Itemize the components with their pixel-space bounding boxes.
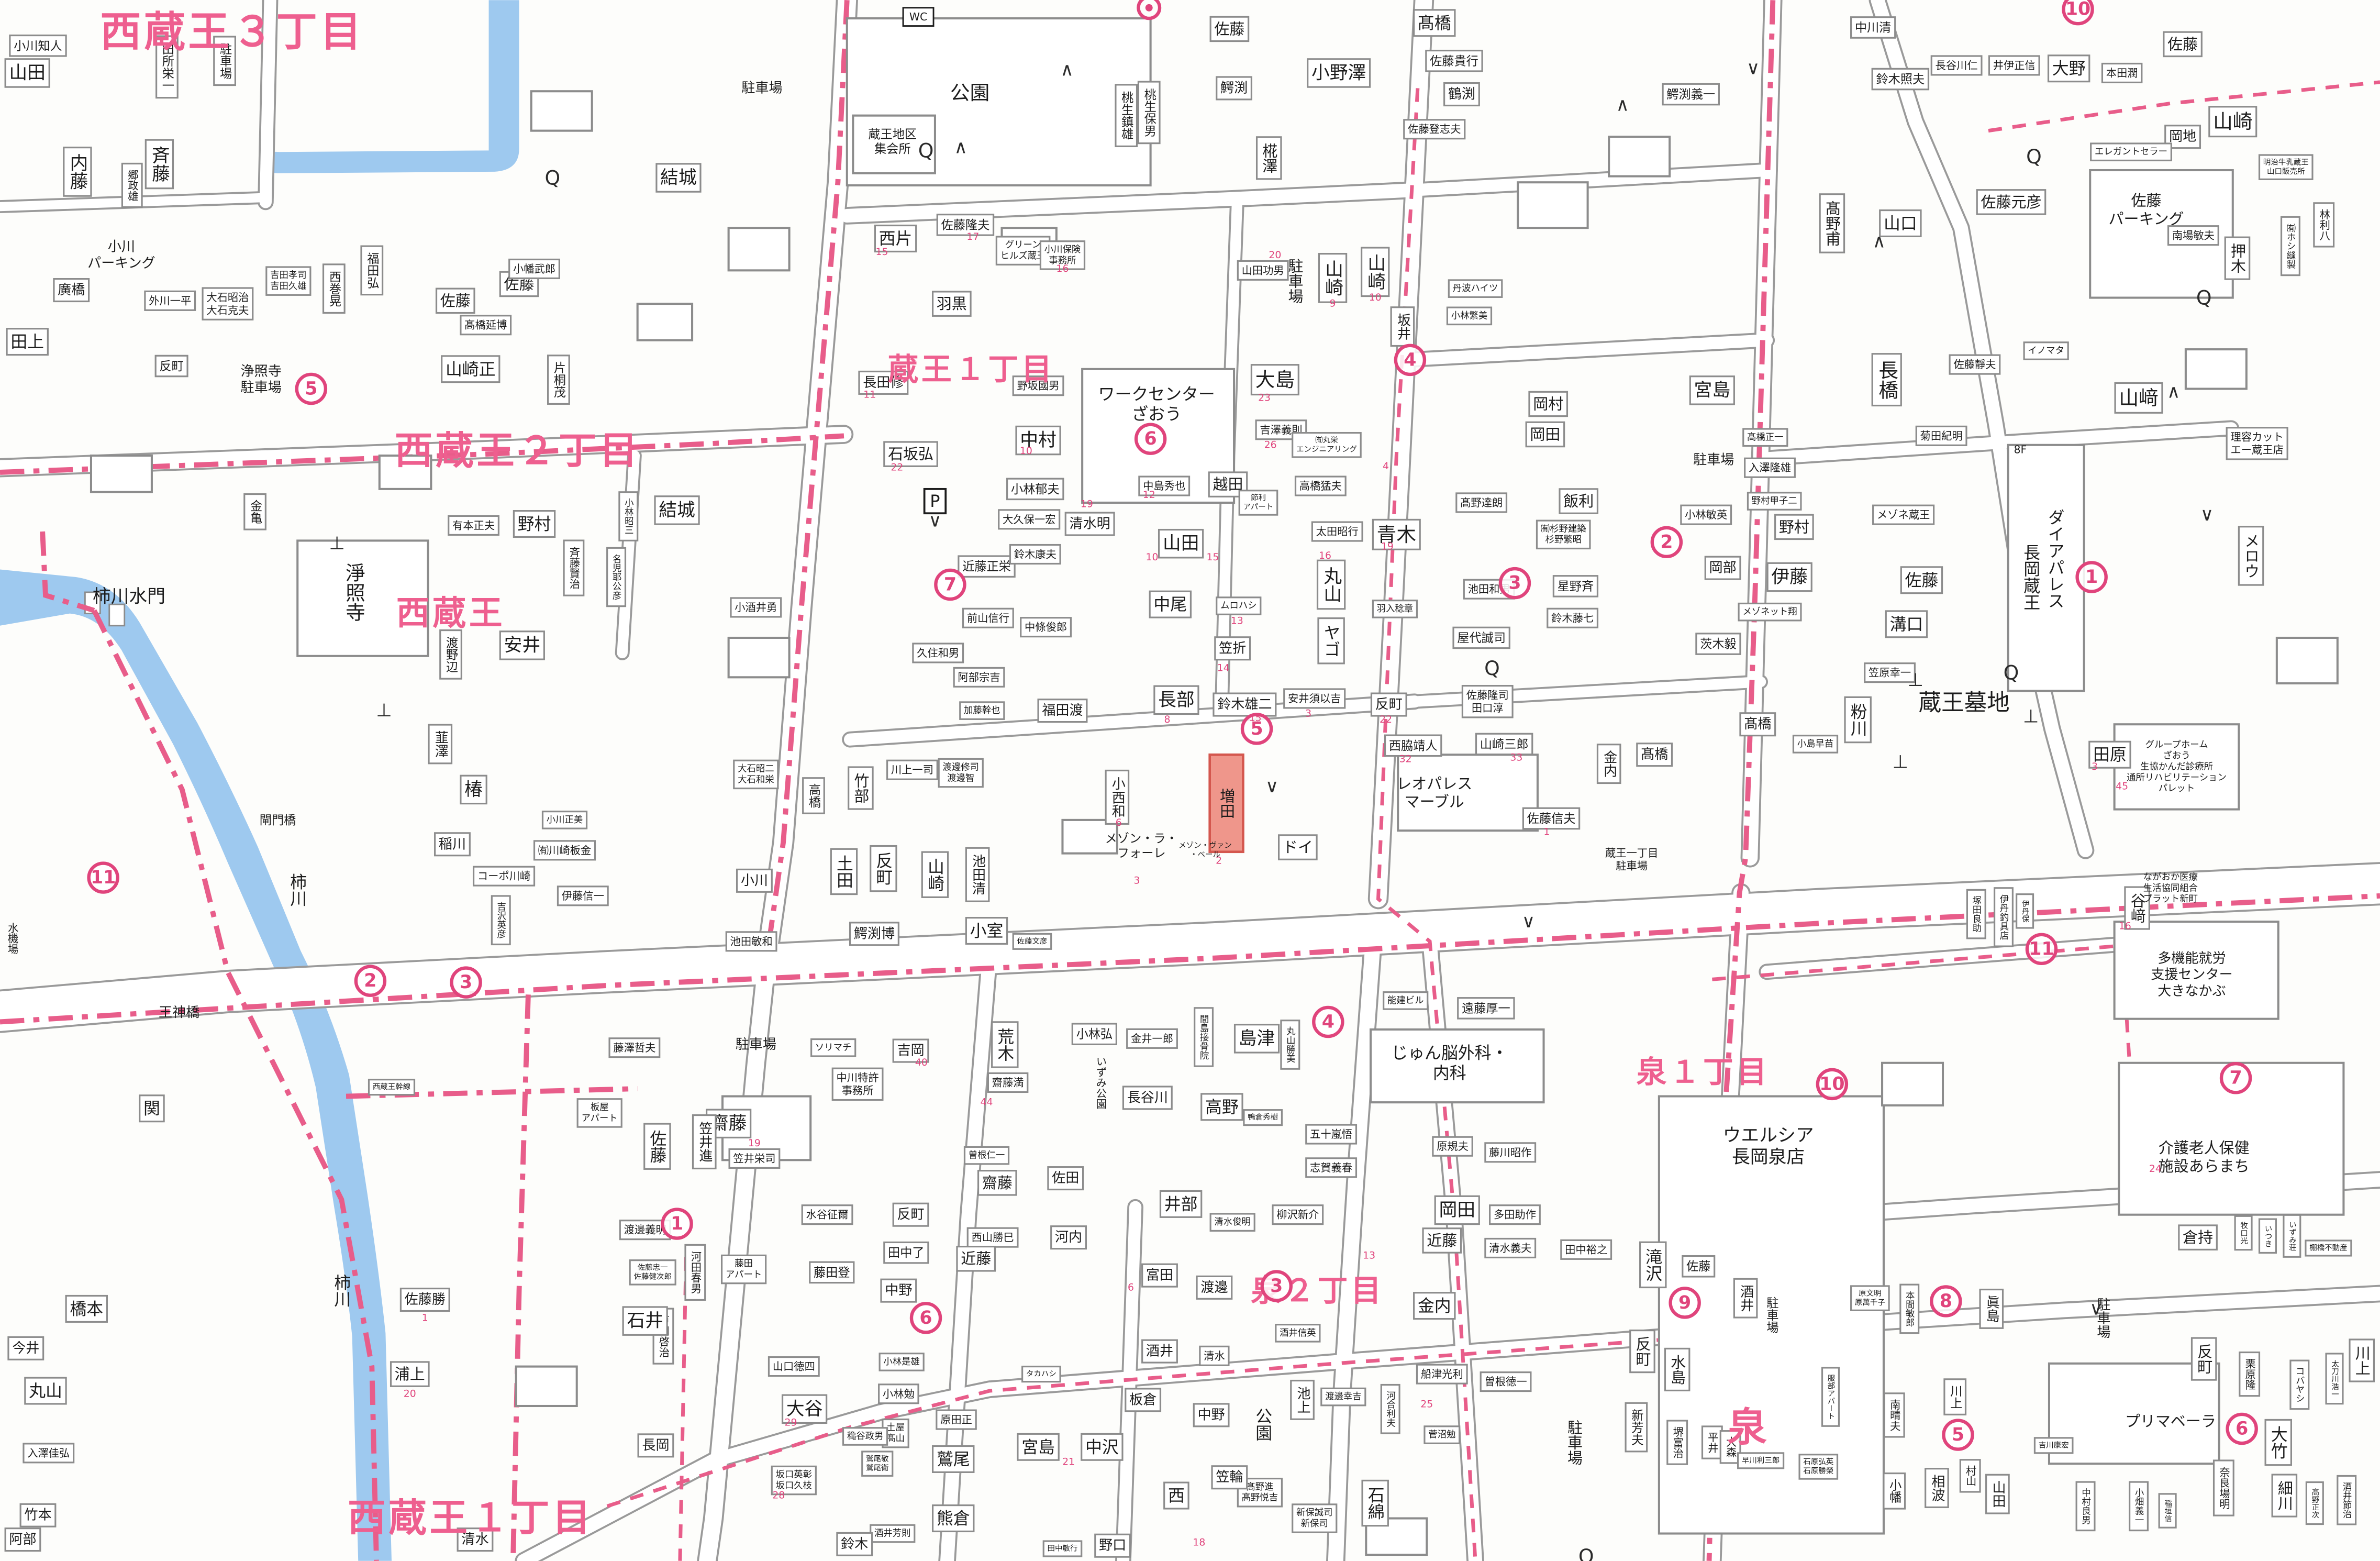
map-label: 柿川 <box>287 873 307 906</box>
map-label: 板倉 <box>1129 1392 1156 1408</box>
lot-number: 20 <box>1269 250 1281 261</box>
entrance-mark-symbol: ∨ <box>1265 776 1278 797</box>
entrance-mark-symbol: ∧ <box>1616 94 1629 115</box>
map-label: 外川一平 <box>149 294 191 307</box>
map-label: 渡邊修司渡邊智 <box>942 762 979 784</box>
map-label: 吉田孝司吉田久雄 <box>270 270 307 292</box>
map-label: 相波 <box>1929 1474 1945 1501</box>
map-label: 原規夫 <box>1437 1140 1469 1153</box>
map-label: 清水義夫 <box>1489 1242 1531 1254</box>
map-label: 齋藤 <box>982 1174 1013 1192</box>
map-label: 中尾 <box>1153 594 1187 614</box>
lot-number: 6 <box>1128 1282 1134 1293</box>
map-label: 野口 <box>1099 1538 1126 1554</box>
map-label: 鰐渕博 <box>854 926 895 942</box>
building-footprint <box>1882 1063 1943 1105</box>
map-label: 遠藤厚一 <box>1462 1001 1510 1015</box>
map-label: 水島 <box>1669 1354 1686 1385</box>
lot-number: 15 <box>1249 713 1262 724</box>
utility-pole-symbol: Q <box>544 167 560 190</box>
map-label: 井部 <box>1164 1194 1198 1214</box>
map-label: 村山 <box>1964 1465 1976 1487</box>
map-label: 原田正 <box>940 1413 972 1426</box>
map-label: 柿川水門 <box>93 586 165 607</box>
map-label: 平井 <box>1706 1432 1718 1453</box>
circled-number: 10 <box>2065 0 2090 20</box>
map-label: 佐藤 <box>2167 35 2198 53</box>
map-label: 公園 <box>950 81 989 104</box>
circled-number: 5 <box>305 378 317 399</box>
map-label: 田中了 <box>888 1246 925 1260</box>
map-label: 鈴木康夫 <box>1014 548 1056 561</box>
map-label: 齋藤満 <box>992 1076 1024 1089</box>
map-label: 島津 <box>1239 1028 1275 1049</box>
map-label: 栗原隆 <box>2243 1358 2256 1390</box>
map-label: 土田 <box>834 855 854 889</box>
map-label: 倉持 <box>2183 1228 2213 1246</box>
map-label: 小西和 <box>1109 777 1126 817</box>
map-label: 山崎 <box>1365 253 1386 290</box>
map-label: 酒井 <box>1738 1285 1754 1312</box>
map-label: ながおか医療生活協同組合プラット新町 <box>2143 872 2198 904</box>
map-label: 小川知人 <box>14 39 62 53</box>
lot-number: 26 <box>1264 439 1277 450</box>
residential-map-canvas: 増田小川知人山田田所栄一駐車場内藤斉藤郷政雄廣橋小川パーキング田上外川一平大石昭… <box>0 0 2380 1561</box>
circled-number: 4 <box>1404 349 1416 370</box>
map-label: 長谷川 <box>1127 1090 1168 1105</box>
entrance-mark-symbol: ∧ <box>1060 60 1073 81</box>
map-label: 小畑義一 <box>2133 1488 2144 1525</box>
map-label: 反町 <box>873 852 893 885</box>
map-label: 桃生保男 <box>1142 88 1156 137</box>
map-label: 髙野正次 <box>2310 1488 2319 1518</box>
map-label: 多田助作 <box>1494 1209 1536 1221</box>
building-footprint <box>2277 638 2338 683</box>
map-label: 池上 <box>1295 1386 1310 1413</box>
map-label: 王神橋 <box>159 1005 199 1021</box>
map-label: 韮澤 <box>432 730 449 758</box>
map-label: 大久保一宏 <box>1003 513 1055 526</box>
lot-number: 15 <box>875 247 888 258</box>
map-label: 飯利 <box>1563 492 1594 510</box>
map-label: 穐谷政男 <box>847 1431 884 1442</box>
map-label: 結城 <box>660 168 697 189</box>
entrance-mark-symbol: ∧ <box>1873 231 1886 252</box>
map-label: 髙橋正一 <box>1747 432 1783 442</box>
lot-number: 2 <box>1216 856 1222 867</box>
cemetery-symbol: ⊥ <box>2023 706 2039 727</box>
map-label: 宮島 <box>1021 1437 1055 1457</box>
map-label: ヤゴ <box>1321 624 1341 658</box>
map-label: 福田弘 <box>365 252 380 289</box>
lot-number: 25 <box>1420 1399 1433 1410</box>
map-label: 反町 <box>1375 697 1403 713</box>
map-label: 熊倉 <box>937 1509 970 1529</box>
lot-number: 40 <box>915 1057 928 1068</box>
map-label: 竹本 <box>24 1508 51 1523</box>
map-label: 山崎正 <box>446 359 496 379</box>
map-label: タカハシ <box>1026 1369 1056 1378</box>
map-label: 近藤 <box>1427 1232 1457 1249</box>
map-label: レオパレスマーブル <box>1396 774 1472 811</box>
map-label: 佐藤隆夫 <box>941 218 990 232</box>
map-label: 伊丹釣具店 <box>1998 894 2009 940</box>
lot-number: 9 <box>1330 298 1336 309</box>
lot-number: 28 <box>772 1490 785 1501</box>
map-label: メゾネット翔 <box>1742 607 1797 617</box>
map-label: コーポ川崎 <box>477 870 530 882</box>
map-label: 小川正美 <box>547 815 583 825</box>
building-footprint <box>516 1367 577 1406</box>
utility-pole-symbol: Q <box>1578 1545 1594 1561</box>
map-label: 長部 <box>1158 690 1195 711</box>
building-footprint <box>1518 182 1587 228</box>
lot-number: 20 <box>404 1388 416 1399</box>
map-label: 笠井進 <box>696 1121 713 1162</box>
circled-number: 10 <box>1819 1073 1844 1094</box>
map-label: 佐藤貴行 <box>1430 54 1478 68</box>
circled-number: 5 <box>1952 1424 1964 1445</box>
map-label: 西巻晃 <box>327 270 341 307</box>
map-label: 山口徳四 <box>773 1360 815 1373</box>
lot-number: 1 <box>422 1312 428 1323</box>
district-label: 西蔵王３丁目 <box>100 8 364 56</box>
building-footprint <box>1609 137 1670 176</box>
map-label: 笠折 <box>1219 640 1246 656</box>
entrance-mark-symbol: ∨ <box>1747 58 1760 79</box>
map-label: 南場敏夫 <box>2172 229 2215 242</box>
map-label: 押木 <box>2228 243 2246 273</box>
lot-number: 8 <box>1164 714 1171 725</box>
circled-number: 7 <box>2229 1068 2242 1089</box>
map-label: 笠原幸一 <box>1869 667 1911 679</box>
highlighted-building-label: 増田 <box>1218 788 1236 818</box>
map-label: 曽根仁一 <box>969 1150 1005 1161</box>
map-label: 岡部 <box>1709 560 1737 576</box>
survey-point-symbol <box>1145 4 1153 12</box>
map-label: 金亀 <box>248 500 263 524</box>
map-label: 丹波ハイツ <box>1453 283 1498 294</box>
map-label: 大島 <box>1255 368 1295 391</box>
lot-number: 13 <box>1231 616 1243 627</box>
map-label: 早川利三郎 <box>1742 1456 1780 1465</box>
map-label: 反町 <box>159 359 183 373</box>
map-label: 西片 <box>879 228 913 248</box>
map-label: 林利八 <box>2318 209 2330 241</box>
map-label: 石原弘英石原勝榮 <box>1803 1457 1833 1475</box>
map-label: 入澤隆雄 <box>1749 461 1791 474</box>
map-label: 山田功男 <box>1242 264 1284 276</box>
map-label: 野村甲子二 <box>1752 496 1797 506</box>
map-label: 柿川 <box>331 1274 351 1308</box>
map-label: 中野 <box>1198 1407 1225 1423</box>
map-label: 西 <box>1168 1486 1185 1505</box>
lot-number: 3 <box>1134 875 1140 886</box>
district-label: 西蔵王 <box>396 594 506 633</box>
map-label: 金井一郎 <box>1131 1032 1173 1045</box>
map-label: 蔵王地区集会所 <box>868 127 917 156</box>
lot-number: 1 <box>1543 827 1550 838</box>
map-label: 溝口 <box>1890 614 1923 634</box>
map-label: いつき <box>2263 1225 2272 1248</box>
entrance-mark-symbol: ∨ <box>928 511 941 532</box>
map-label: 近藤正栄 <box>962 559 1011 573</box>
map-label: 菅沼勉 <box>1428 1430 1455 1440</box>
map-label: 廣橋 <box>58 282 85 298</box>
circled-number: 3 <box>1270 1276 1283 1297</box>
map-label: 塚田良助 <box>1971 896 1982 933</box>
map-label: 岡田 <box>1439 1200 1475 1221</box>
building-footprint <box>91 456 152 492</box>
map-label: 本田潤 <box>2106 67 2138 79</box>
map-label: 髙橋 <box>1418 13 1451 33</box>
map-label: 小林昭三 <box>623 498 633 535</box>
circled-number: 8 <box>1940 1291 1952 1312</box>
circled-number: 11 <box>2029 938 2054 959</box>
map-label: 西山勝巳 <box>972 1231 1014 1244</box>
lot-number: 45 <box>2116 781 2128 792</box>
map-label: コバヤシ <box>2294 1367 2305 1403</box>
map-label: 岡地 <box>2169 129 2196 145</box>
map-label: 高橋 <box>806 783 821 808</box>
map-label: 駐車場 <box>1764 1297 1779 1333</box>
map-label: 閘門橋 <box>260 813 296 827</box>
entrance-mark-symbol: ∧ <box>954 137 967 158</box>
lot-number: 21 <box>1062 1457 1075 1468</box>
map-label: 鈴木藤七 <box>1551 612 1594 624</box>
map-label: 川上 <box>2353 1345 2371 1376</box>
map-label: 橋本 <box>70 1299 103 1319</box>
map-label: 今井 <box>12 1341 39 1356</box>
map-label: 野村 <box>518 514 551 534</box>
map-label: 前山信行 <box>967 612 1009 624</box>
map-label: 太田昭行 <box>1316 525 1359 538</box>
lot-number: 32 <box>1399 754 1412 765</box>
map-label: 丸山 <box>1321 567 1342 603</box>
map-label: 髙橋延博 <box>464 319 507 331</box>
circled-number: 11 <box>91 867 116 888</box>
map-label: 多機能就労支援センター大きなかぶ <box>2151 950 2232 999</box>
map-label: 安井須以吉 <box>1288 692 1341 705</box>
lot-number: 19 <box>1081 499 1093 510</box>
map-label: 渡邊義明 <box>624 1224 666 1236</box>
map-label: 小林繁美 <box>1451 311 1488 321</box>
map-label: 清水明 <box>1070 516 1110 532</box>
lot-number: 16 <box>2119 921 2131 932</box>
map-label: 髙橋 <box>1641 747 1668 762</box>
map-label: 石坂弘 <box>888 445 933 463</box>
map-label: 介護老人保健施設あらまち <box>2159 1139 2250 1175</box>
map-label: 髙橋 <box>1744 716 1771 732</box>
map-label: 佐藤 <box>1214 20 1244 38</box>
circled-number: 7 <box>944 574 957 595</box>
circled-number: 9 <box>1678 1292 1691 1313</box>
map-label: 清水 <box>1204 1349 1225 1362</box>
utility-pole-symbol: Q <box>2004 661 2019 684</box>
lot-number: 18 <box>1193 1537 1205 1548</box>
lot-number: 15 <box>1207 552 1219 563</box>
map-label: 久住和男 <box>917 647 959 659</box>
circled-number: 2 <box>364 970 376 991</box>
map-label: 阿部 <box>9 1532 36 1547</box>
circled-number: 3 <box>460 972 472 993</box>
map-label: 羽入稔章 <box>1377 604 1414 614</box>
map-label: 吉川康宏 <box>2039 1441 2069 1449</box>
map-label: 丸山 <box>29 1381 62 1401</box>
map-label: プリマベーラ <box>2125 1412 2216 1430</box>
map-label: 西蔵王幹線 <box>373 1082 410 1091</box>
map-label: 奈良場明 <box>2217 1467 2230 1509</box>
circled-number: 6 <box>2236 1418 2248 1439</box>
map-label: 片桐茂 <box>551 361 566 398</box>
lot-number: 24 <box>2149 1164 2162 1175</box>
map-label: 新芳夫 <box>1629 1409 1644 1446</box>
map-label: 小林郁夫 <box>1011 482 1060 496</box>
map-label: 酒井信英 <box>1280 1328 1316 1338</box>
building-footprint <box>729 228 789 270</box>
lot-number: 3 <box>2092 761 2098 772</box>
map-label: 近藤 <box>961 1250 991 1268</box>
map-label: 長岡蔵王 <box>2021 544 2041 611</box>
map-label: 山崎 <box>925 858 945 891</box>
map-label: 堺富治 <box>1671 1426 1684 1458</box>
map-label: 高橋猛夫 <box>1299 480 1342 492</box>
lot-number: 10 <box>1020 446 1032 457</box>
map-label: 中川清 <box>1855 20 1892 35</box>
map-label: 佐藤 <box>440 292 471 309</box>
map-label: 曽根徳一 <box>1484 1376 1527 1388</box>
map-label: ㈲杉野建築杉野繁昭 <box>1541 524 1586 545</box>
map-label: 河田春男 <box>689 1251 702 1293</box>
map-label: 山田 <box>9 62 46 83</box>
entrance-mark-symbol: ∨ <box>1522 911 1535 932</box>
lot-number: 12 <box>1143 490 1155 501</box>
map-label: 稲垣信 <box>2163 1499 2172 1522</box>
map-label: 山田 <box>1989 1480 2005 1508</box>
map-label: 小酒井勇 <box>735 601 777 614</box>
map-label: 名児耶公彦 <box>611 555 621 600</box>
map-label: 佐田 <box>1052 1170 1079 1186</box>
map-label: 福田渡 <box>1042 703 1083 718</box>
map-label: 長橋 <box>1875 360 1898 400</box>
map-label: 服部アパート <box>1826 1374 1834 1420</box>
map-label: 酒井芳則 <box>874 1529 911 1539</box>
entrance-mark-symbol: ∨ <box>2089 1298 2103 1319</box>
map-label: ㈲ホシ縫製 <box>2285 223 2296 269</box>
map-label: 佐藤靜夫 <box>1953 358 1996 371</box>
cemetery-symbol: ⊥ <box>1908 670 1923 691</box>
cemetery-symbol: ⊥ <box>329 533 344 554</box>
map-label: 棚橋不動産 <box>2309 1243 2347 1252</box>
utility-pole-symbol: Q <box>2196 286 2212 309</box>
lot-number: 44 <box>981 1097 993 1108</box>
map-label: 南晴夫 <box>1888 1399 1900 1431</box>
map-label: 石井 <box>627 1311 663 1332</box>
map-label: 椛澤 <box>1260 142 1278 173</box>
lot-number: 19 <box>748 1138 761 1149</box>
lot-number: 19 <box>1381 541 1394 552</box>
map-label: 斉藤賢治 <box>568 547 580 589</box>
map-label: 坂口英彰坂口久枝 <box>776 1470 813 1491</box>
map-label: 眞島 <box>1984 1295 1999 1322</box>
map-label: 反町 <box>2195 1344 2213 1374</box>
map-label: 鈴木照夫 <box>1876 72 1925 86</box>
map-label: 鰐渕義一 <box>1666 87 1715 102</box>
map-label: 入澤佳弘 <box>27 1447 70 1459</box>
map-label: 山崎 <box>2213 110 2252 133</box>
map-label: 浄照寺駐車場 <box>241 363 282 395</box>
map-label: 竹部 <box>852 773 870 803</box>
lot-number: 16 <box>1056 263 1069 274</box>
map-label: 反町 <box>897 1207 924 1223</box>
map-label: 稲川 <box>439 836 466 852</box>
map-label: 駐車場 <box>741 80 782 96</box>
map-label: 西脇靖人 <box>1389 738 1438 752</box>
map-label: 小野澤 <box>1311 62 1366 83</box>
lot-number: 10 <box>1369 292 1382 303</box>
map-label: 田上 <box>10 332 44 352</box>
map-label: 間島接骨院 <box>1198 1014 1209 1060</box>
map-label: 淨照寺 <box>342 562 365 622</box>
map-label: イノマタ <box>2028 346 2064 356</box>
map-label: 佐藤登志夫 <box>1408 123 1461 136</box>
map-label: 佐藤勝 <box>405 1292 446 1308</box>
map-label: 川上 <box>1948 1385 1963 1409</box>
map-label: 鷲尾 <box>937 1449 970 1469</box>
map-label: 川上一司 <box>891 763 933 776</box>
map-label: ムロハシ <box>1220 601 1257 611</box>
map-label: 中野 <box>885 1283 912 1299</box>
map-label: 新保誠司新保司 <box>1296 1508 1333 1529</box>
lot-number: 14 <box>1217 662 1230 673</box>
map-label: 鰐渕 <box>1220 80 1248 96</box>
entrance-mark-symbol: ∨ <box>2200 504 2214 525</box>
lot-number: 33 <box>1510 752 1522 763</box>
map-label: 酒井節治 <box>2341 1482 2352 1519</box>
map-label: 駐車場 <box>1693 452 1734 468</box>
map-label: 佐藤隆司田口淳 <box>1466 689 1509 714</box>
map-label: 屋代誠司 <box>1457 630 1506 645</box>
map-label: メゾネ蔵王 <box>1877 508 1930 521</box>
map-label: 笠井栄司 <box>733 1152 775 1165</box>
map-label: 田原 <box>2093 745 2127 765</box>
utility-pole-symbol: Q <box>2026 145 2042 168</box>
utility-pole-symbol: Q <box>1484 657 1500 680</box>
building-footprint <box>531 91 592 130</box>
map-label: 小川保険事務所 <box>1044 245 1081 266</box>
map-label: 粉川 <box>1848 703 1868 737</box>
utility-pole-symbol: Q <box>918 139 934 162</box>
lot-number: 10 <box>1146 552 1159 563</box>
map-label: 山崎 <box>1322 260 1343 296</box>
map-label: 池田清 <box>970 854 986 895</box>
map-label: 田中敏行 <box>1047 1544 1077 1553</box>
map-label: 関 <box>143 1099 160 1119</box>
map-label: 伊藤 <box>1771 567 1808 588</box>
map-label: ㈲川崎板金 <box>538 844 591 857</box>
circled-number: 1 <box>2085 567 2098 588</box>
map-label: 蔵王墓地 <box>1919 690 2010 716</box>
map-label: 鶴渕 <box>1448 86 1475 102</box>
map-label: メロウ <box>2242 533 2260 579</box>
map-label: 藤澤哲夫 <box>613 1042 655 1054</box>
map-label: 渡邊 <box>1200 1280 1228 1296</box>
lot-number: 16 <box>1319 550 1331 561</box>
map-label: 菊田紀明 <box>1920 429 1963 442</box>
map-label: 茨木毅 <box>1700 637 1737 651</box>
map-label: 長岡 <box>642 1437 669 1453</box>
map-label: 星野斉 <box>1558 579 1594 593</box>
